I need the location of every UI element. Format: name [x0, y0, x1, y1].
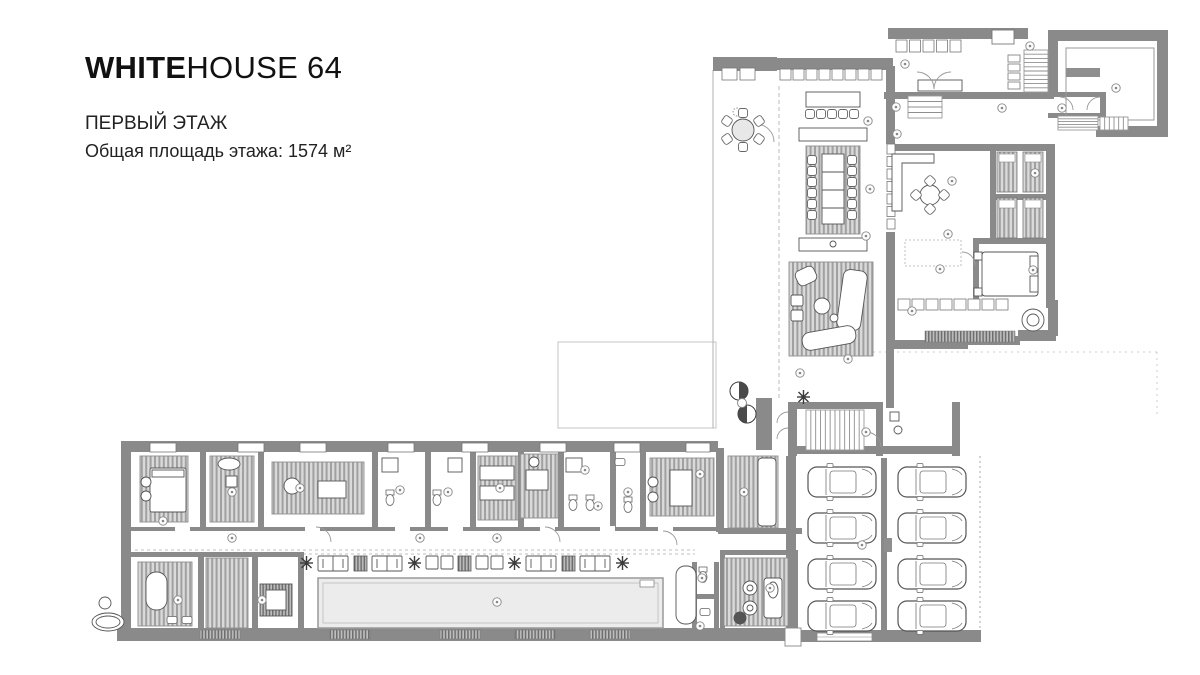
title-block: WHITEHOUSE 64 ПЕРВЫЙ ЭТАЖ Общая площадь …	[85, 50, 351, 162]
round-table	[920, 185, 940, 205]
pool	[318, 578, 663, 628]
cabinet-sofa	[758, 458, 776, 526]
kitchen-island	[806, 92, 860, 107]
pool-sofa	[676, 566, 696, 624]
furniture	[92, 80, 1044, 631]
massage-table	[670, 470, 692, 506]
sideboard	[799, 128, 867, 141]
bathtub	[146, 572, 167, 610]
pool-loungers	[300, 556, 629, 571]
brand-title: WHITEHOUSE 64	[85, 50, 351, 86]
brand-light: HOUSE 64	[186, 50, 342, 85]
dining-table	[822, 154, 844, 224]
terrace-table	[732, 119, 754, 141]
pool-ladder	[640, 580, 654, 587]
page: WHITEHOUSE 64 ПЕРВЫЙ ЭТАЖ Общая площадь …	[0, 0, 1200, 675]
area-label: Общая площадь этажа: 1574 м²	[85, 141, 351, 162]
brand-bold: WHITE	[85, 50, 186, 85]
floor-label: ПЕРВЫЙ ЭТАЖ	[85, 113, 351, 135]
